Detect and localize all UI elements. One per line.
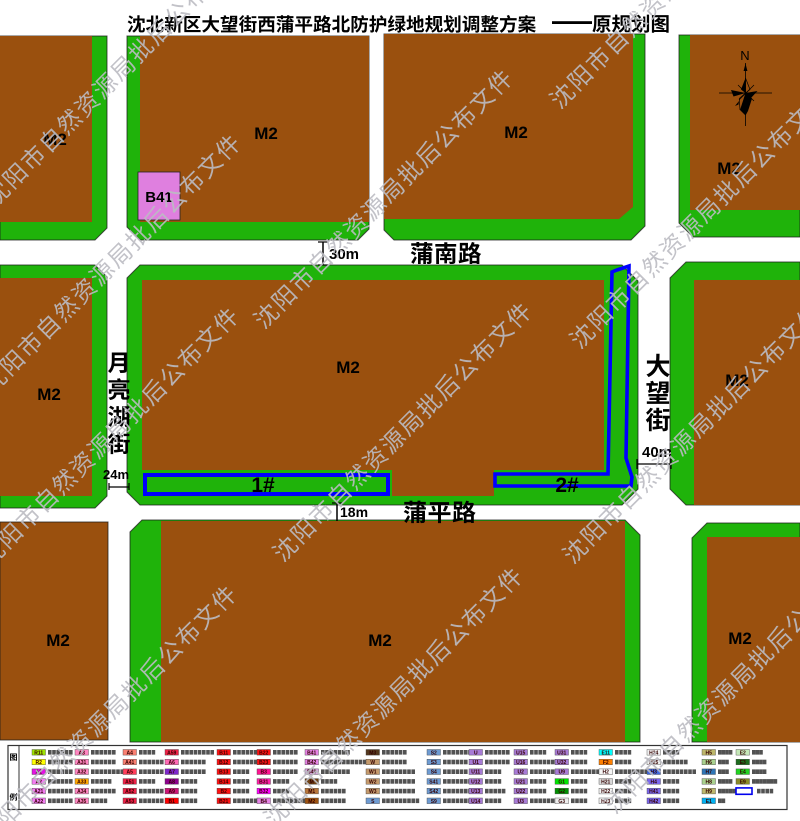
svg-text:U22: U22	[516, 789, 525, 795]
svg-text:E3: E3	[740, 760, 746, 766]
svg-text:U15: U15	[516, 750, 525, 756]
svg-text:U9: U9	[559, 770, 566, 776]
svg-text:U12: U12	[471, 779, 480, 785]
svg-text:U32: U32	[557, 760, 566, 766]
svg-text:A52: A52	[125, 789, 134, 795]
svg-text:N: N	[740, 48, 749, 63]
svg-text:A8: A8	[169, 779, 176, 785]
svg-text:B32: B32	[259, 789, 268, 795]
svg-text:H6: H6	[706, 760, 713, 766]
svg-text:H2: H2	[603, 770, 610, 776]
svg-text:A32: A32	[77, 770, 86, 776]
svg-text:S9: S9	[431, 799, 437, 805]
svg-text:E2: E2	[740, 750, 746, 756]
svg-text:B42: B42	[307, 760, 316, 766]
svg-text:E9: E9	[740, 779, 746, 785]
svg-text:U16: U16	[516, 760, 525, 766]
svg-text:G2: G2	[558, 789, 565, 795]
svg-text:W2: W2	[369, 779, 377, 785]
svg-text:H7: H7	[706, 770, 713, 776]
svg-text:H9: H9	[706, 789, 713, 795]
svg-text:E11: E11	[601, 750, 610, 756]
svg-text:H5: H5	[706, 750, 713, 756]
svg-text:18m: 18m	[340, 504, 368, 520]
svg-text:A33: A33	[77, 779, 86, 785]
svg-text:H41: H41	[649, 789, 658, 795]
svg-text:M2: M2	[368, 631, 392, 650]
svg-text:M2: M2	[46, 631, 70, 650]
svg-text:H22: H22	[601, 789, 610, 795]
svg-text:A51: A51	[125, 779, 134, 785]
svg-text:M2: M2	[254, 124, 278, 143]
svg-text:M2: M2	[728, 629, 752, 648]
svg-text:U11: U11	[471, 770, 480, 776]
svg-text:A53: A53	[125, 799, 134, 805]
svg-text:U2: U2	[518, 770, 525, 776]
svg-text:2#: 2#	[555, 474, 579, 497]
svg-text:B13: B13	[219, 770, 228, 776]
svg-text:W1: W1	[369, 770, 377, 776]
svg-text:W3: W3	[369, 789, 377, 795]
svg-text:A5: A5	[127, 770, 134, 776]
svg-text:M3: M3	[369, 750, 376, 756]
svg-text:A41: A41	[125, 760, 134, 766]
svg-text:A9: A9	[169, 789, 176, 795]
svg-text:30m: 30m	[329, 246, 359, 263]
svg-text:G3: G3	[558, 799, 565, 805]
svg-text:U: U	[474, 750, 478, 756]
svg-text:B41: B41	[307, 750, 316, 756]
svg-text:A6: A6	[169, 760, 176, 766]
svg-text:A31: A31	[77, 760, 86, 766]
svg-text:B11: B11	[219, 750, 228, 756]
svg-text:U31: U31	[557, 750, 566, 756]
svg-text:E1: E1	[706, 799, 712, 805]
svg-text:G1: G1	[558, 779, 565, 785]
svg-text:S4: S4	[431, 770, 437, 776]
svg-text:B12: B12	[219, 760, 228, 766]
svg-text:H21: H21	[601, 779, 610, 785]
svg-text:W: W	[370, 760, 375, 766]
svg-text:A22: A22	[34, 799, 43, 805]
svg-text:A35: A35	[77, 799, 86, 805]
svg-text:S3: S3	[431, 760, 437, 766]
svg-text:M2: M2	[504, 123, 528, 142]
svg-text:M: M	[310, 779, 314, 785]
svg-text:B22: B22	[259, 750, 268, 756]
svg-text:A34: A34	[77, 789, 86, 795]
svg-text:M2: M2	[336, 358, 360, 377]
svg-text:B14: B14	[219, 779, 228, 785]
svg-text:B4: B4	[261, 799, 268, 805]
svg-text:S2: S2	[431, 750, 437, 756]
svg-text:1#: 1#	[251, 474, 275, 497]
svg-text:A4: A4	[127, 750, 134, 756]
svg-text:A7: A7	[169, 770, 176, 776]
svg-text:B2: B2	[221, 789, 228, 795]
svg-text:H8: H8	[706, 779, 713, 785]
svg-text:M2: M2	[308, 799, 315, 805]
svg-text:24m: 24m	[103, 467, 129, 482]
svg-text:F2: F2	[603, 760, 609, 766]
svg-text:U14: U14	[471, 799, 480, 805]
svg-text:R2: R2	[36, 760, 43, 766]
svg-text:B3: B3	[261, 770, 268, 776]
svg-text:R11: R11	[34, 750, 43, 756]
svg-text:S42: S42	[429, 789, 438, 795]
svg-text:H4: H4	[651, 779, 658, 785]
svg-text:B1: B1	[169, 799, 176, 805]
svg-text:B41: B41	[145, 189, 173, 206]
svg-text:B23: B23	[259, 760, 268, 766]
svg-text:M1: M1	[308, 789, 315, 795]
svg-text:U3: U3	[518, 799, 525, 805]
svg-text:B31: B31	[259, 779, 268, 785]
svg-text:U21: U21	[516, 779, 525, 785]
svg-text:S41: S41	[429, 779, 438, 785]
svg-text:A59: A59	[167, 750, 176, 756]
svg-text:U13: U13	[471, 789, 480, 795]
svg-text:U1: U1	[473, 760, 480, 766]
svg-text:M2: M2	[37, 385, 61, 404]
svg-text:E4: E4	[740, 770, 746, 776]
svg-text:H42: H42	[649, 799, 658, 805]
svg-text:B21: B21	[219, 799, 228, 805]
